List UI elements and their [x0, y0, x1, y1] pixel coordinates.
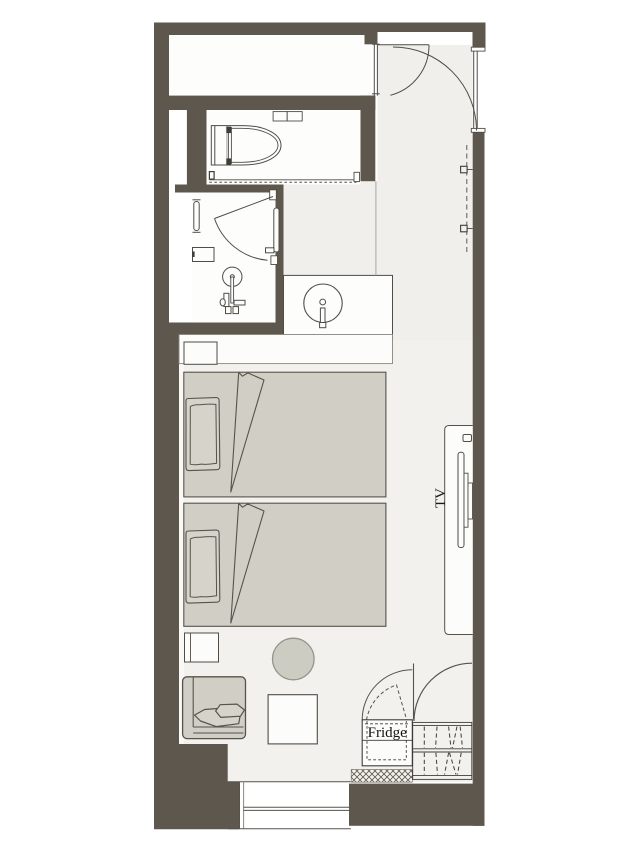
svg-text:TV: TV — [433, 488, 449, 508]
svg-text:Fridge: Fridge — [368, 725, 408, 741]
